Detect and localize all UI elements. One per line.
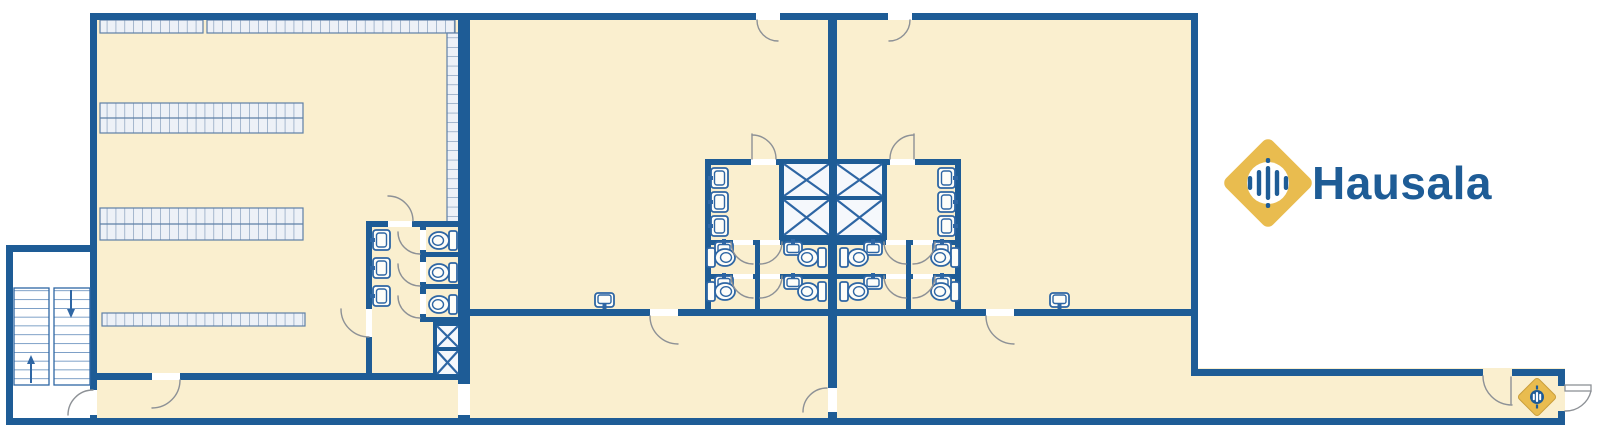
- door-opening: [751, 159, 776, 165]
- stall-wall: [755, 240, 760, 309]
- wall-south: [6, 418, 1565, 425]
- corridor-wall-east-b: [1558, 411, 1565, 425]
- door-opening: [733, 274, 753, 279]
- wall-opening: [458, 384, 470, 415]
- stall-wall: [420, 252, 458, 257]
- sink-icon: [708, 168, 728, 188]
- stall-wall: [420, 317, 470, 322]
- sanitary-wall: [366, 221, 372, 380]
- toilet-icon: [798, 282, 826, 301]
- toilet-icon: [429, 295, 457, 314]
- toilet-icon: [429, 231, 457, 250]
- brand-marker-tick: [1536, 386, 1538, 390]
- rack-row: [100, 20, 203, 33]
- brand-logo: Hausala: [1221, 136, 1492, 229]
- floor-plan-drawing: Hausala: [0, 0, 1600, 435]
- corridor-wall-north-b: [1512, 369, 1565, 376]
- door-opening: [888, 11, 912, 20]
- brand-marker-bar: [1539, 394, 1541, 400]
- door-opening: [650, 309, 678, 316]
- west-interior-wall-south: [90, 373, 470, 380]
- floor-plan-canvas: Hausala: [0, 0, 1600, 435]
- sink-icon: [370, 230, 390, 250]
- door-opening: [986, 309, 1014, 316]
- stairwell-wall-west: [6, 245, 13, 425]
- sink-icon: [370, 286, 390, 306]
- door-opening: [760, 240, 780, 245]
- door-opening: [366, 309, 372, 337]
- east-interior-wall-south: [837, 309, 1198, 316]
- door-opening: [760, 274, 780, 279]
- door-opening: [733, 240, 753, 245]
- rack-row: [102, 313, 305, 326]
- sink-icon: [595, 293, 614, 309]
- door-swing-arc: [1565, 391, 1591, 411]
- brand-marker-bar: [1536, 392, 1538, 402]
- brand-marker-tick: [1536, 405, 1538, 409]
- exit-door: [1565, 385, 1591, 411]
- rack-row: [207, 20, 455, 33]
- south-corridor-floor: [1198, 368, 1565, 425]
- door-opening: [420, 230, 426, 250]
- wall-west: [90, 13, 97, 425]
- corridor-wall-north-a: [1198, 369, 1483, 376]
- sink-icon: [1050, 293, 1069, 309]
- toilet-icon: [429, 263, 457, 282]
- toilet-icon: [798, 248, 826, 267]
- elevator-shafts-west: [433, 322, 462, 378]
- toilet-icon: [707, 248, 735, 267]
- sink-icon: [708, 192, 728, 212]
- door-leaf: [1565, 385, 1591, 391]
- brand-marker-bar: [1533, 394, 1535, 400]
- sink-icon: [370, 258, 390, 278]
- toilet-icon: [707, 282, 735, 301]
- door-opening: [420, 262, 426, 282]
- corridor-wall-east-a: [1558, 376, 1565, 386]
- door-opening: [388, 221, 412, 227]
- door-opening: [90, 390, 97, 415]
- brand-wordmark: Hausala: [1312, 157, 1492, 209]
- door-opening: [152, 373, 180, 380]
- stairwell-wall-north: [6, 245, 97, 252]
- wall-east: [1191, 13, 1198, 376]
- wall-north: [90, 13, 1198, 20]
- stall-wall: [420, 284, 458, 289]
- door-opening: [420, 294, 426, 314]
- door-opening: [828, 388, 837, 412]
- sanitary-wall: [366, 221, 467, 227]
- sink-icon: [708, 216, 728, 236]
- door-opening: [756, 11, 780, 20]
